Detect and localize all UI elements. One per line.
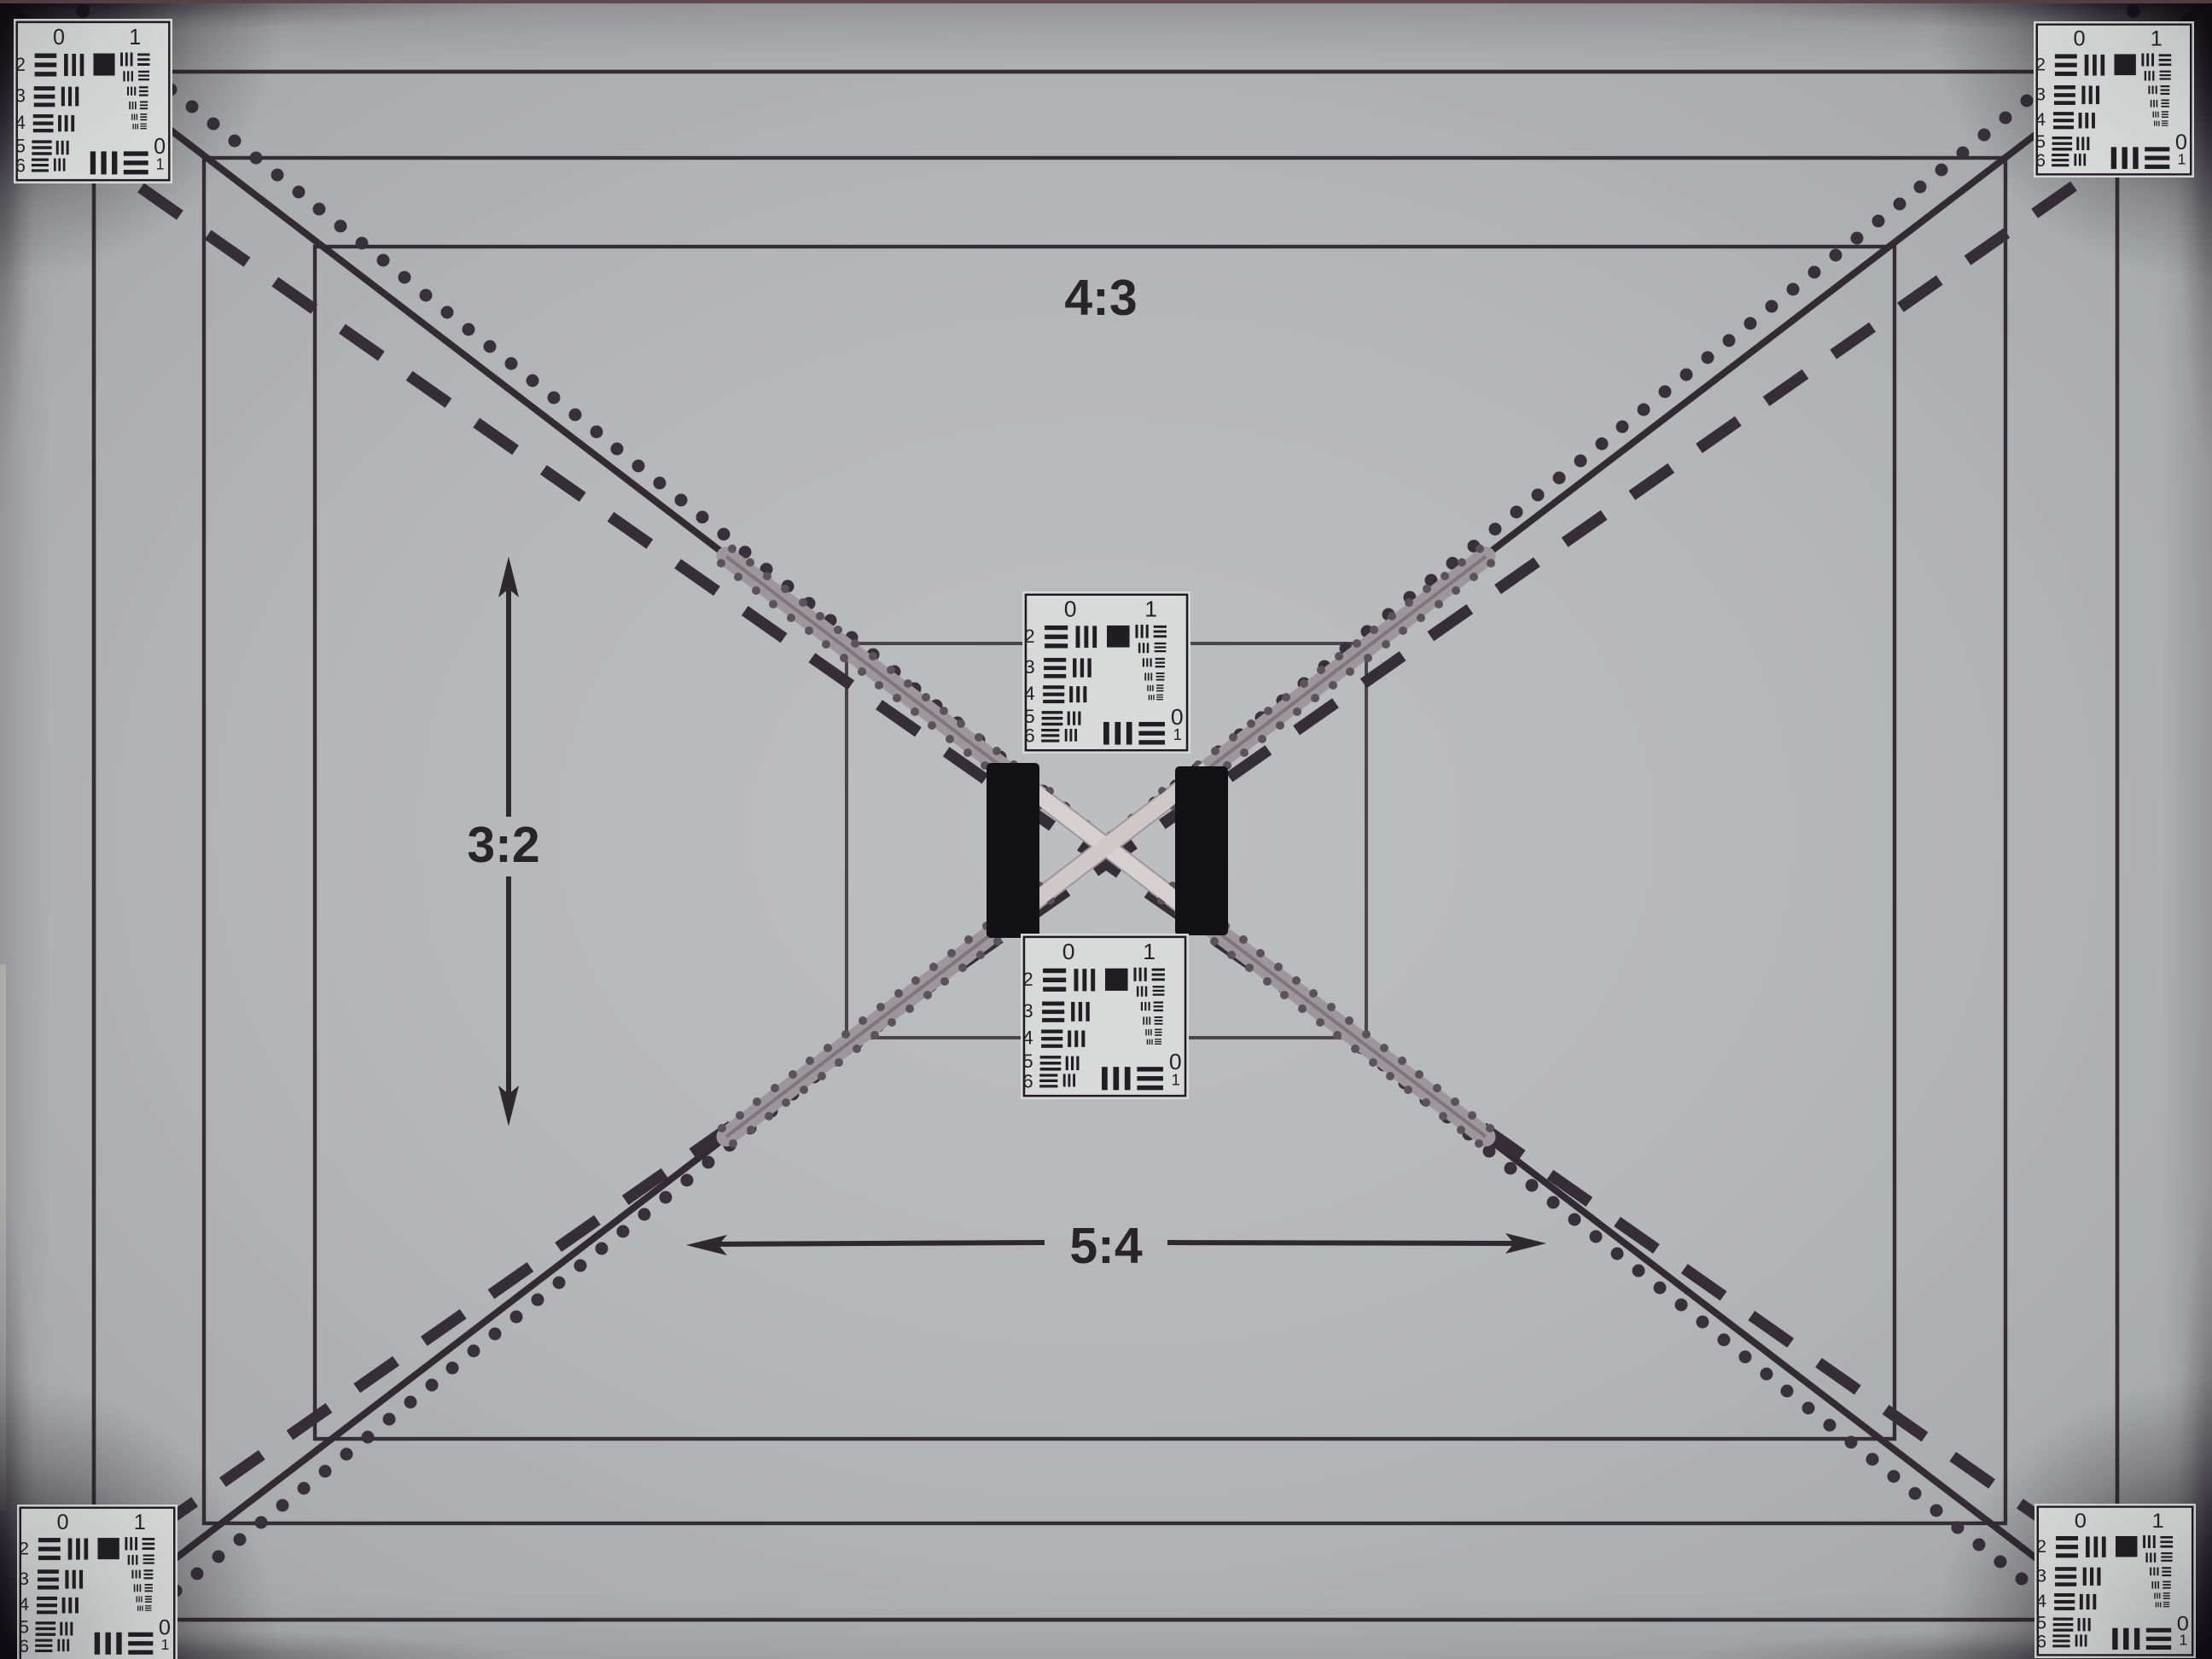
svg-text:3:2: 3:2 (467, 817, 539, 873)
svg-text:4:3: 4:3 (1064, 270, 1137, 326)
svg-text:5:4: 5:4 (1069, 1218, 1142, 1274)
